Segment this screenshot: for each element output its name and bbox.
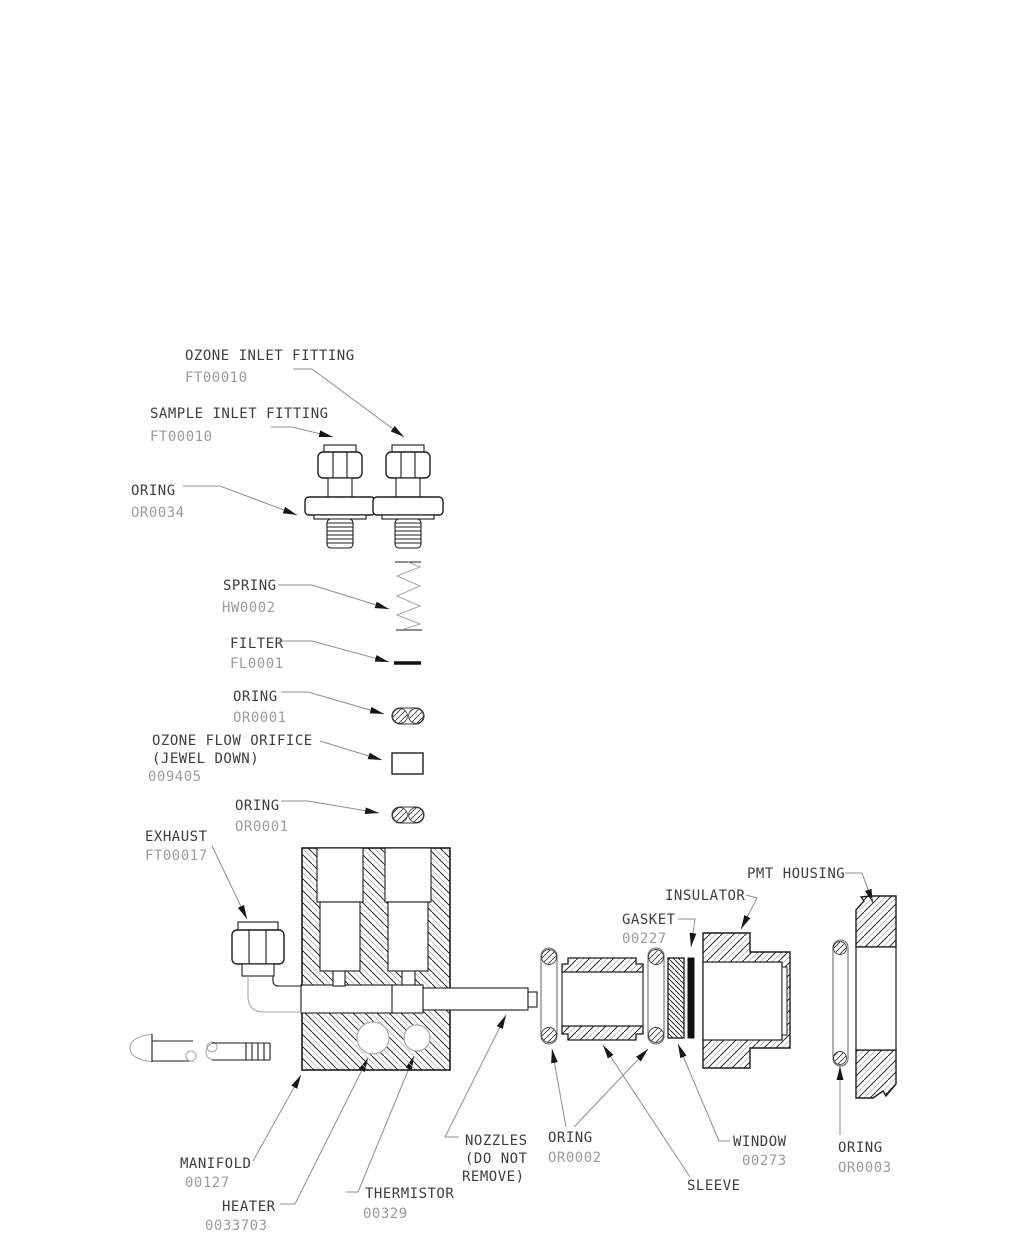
pmt-housing-drawing: [856, 896, 896, 1098]
leader-oring-or0034: [183, 486, 297, 515]
labels: OZONE INLET FITTING FT00010 SAMPLE INLET…: [131, 348, 892, 1234]
leader-manifold: [253, 1075, 301, 1161]
spring-drawing: [395, 562, 422, 630]
label-oring-or0002: ORING: [548, 1130, 593, 1146]
oring-or0001-lower-drawing: [392, 807, 424, 823]
label-window-pn: 00273: [742, 1153, 787, 1169]
label-exhaust-pn: FT00017: [145, 848, 208, 864]
leader-gasket: [678, 919, 695, 947]
leader-heater: [280, 1058, 368, 1204]
label-spring: SPRING: [223, 578, 277, 594]
leader-ozone-inlet-fitting: [293, 369, 404, 437]
oring-or0001-upper-drawing: [392, 708, 424, 724]
label-sample-inlet-fitting-pn: FT00010: [150, 429, 213, 445]
nozzles-drawing: [392, 985, 537, 1013]
exploded-parts-diagram: OZONE INLET FITTING FT00010 SAMPLE INLET…: [0, 0, 1031, 1246]
manifold-drawing: [301, 848, 450, 1070]
label-nozzles: NOZZLES: [465, 1133, 528, 1149]
window-drawing: [668, 958, 684, 1038]
leader-sample-inlet-fitting: [271, 427, 333, 437]
exhaust-fitting-drawing: [232, 922, 302, 1012]
label-heater-pn: 0033703: [205, 1218, 268, 1234]
sample-inlet-fitting-drawing: [305, 445, 375, 548]
leader-oring-or0001-lower: [281, 801, 379, 813]
label-thermistor: THERMISTOR: [365, 1186, 454, 1202]
label-oring-or0003-pn: OR0003: [838, 1160, 892, 1176]
leader-exhaust: [212, 846, 247, 919]
label-sleeve: SLEEVE: [687, 1178, 741, 1194]
sleeve-drawing: [562, 958, 643, 1040]
leader-oring-or0001-upper: [281, 692, 384, 714]
label-oring-or0002-pn: OR0002: [548, 1150, 602, 1166]
label-oring-or0001-lower-pn: OR0001: [235, 819, 289, 835]
label-ozone-flow-orifice-pn: 009405: [148, 769, 202, 785]
insulator-drawing: [703, 933, 790, 1068]
label-gasket-pn: 00227: [622, 931, 667, 947]
label-manifold-pn: 00127: [185, 1175, 230, 1191]
label-insulator: INSULATOR: [665, 888, 745, 904]
label-oring-or0001-lower: ORING: [235, 798, 280, 814]
gasket-drawing: [688, 958, 694, 1038]
label-heater: HEATER: [222, 1199, 276, 1215]
leader-ozone-flow-orifice: [320, 741, 382, 760]
label-pmt-housing: PMT HOUSING: [747, 866, 845, 882]
ozone-inlet-fitting-drawing: [373, 445, 443, 548]
heater-bore-circle: [357, 1022, 389, 1054]
leader-nozzles: [445, 1015, 506, 1137]
label-nozzles-note2: REMOVE): [462, 1169, 525, 1185]
leader-oring-or0002-right: [574, 1049, 648, 1127]
label-spring-pn: HW0002: [222, 600, 276, 616]
label-ozone-inlet-fitting-pn: FT00010: [185, 370, 248, 386]
leader-oring-or0002-left: [552, 1049, 566, 1127]
label-oring-or0001-upper-pn: OR0001: [233, 710, 287, 726]
label-ozone-flow-orifice: OZONE FLOW ORIFICE: [152, 733, 313, 749]
label-oring-or0034: ORING: [131, 483, 176, 499]
label-exhaust: EXHAUST: [145, 829, 208, 845]
leader-filter: [278, 641, 389, 662]
label-ozone-inlet-fitting: OZONE INLET FITTING: [185, 348, 355, 364]
oring-or0002-right-drawing: [648, 948, 664, 1044]
heater-cartridge-drawing: [130, 1034, 196, 1062]
label-sample-inlet-fitting: SAMPLE INLET FITTING: [150, 406, 329, 422]
ozone-flow-orifice-drawing: [392, 753, 423, 774]
manual-page: OZONE INLET FITTING FT00010 SAMPLE INLET…: [0, 0, 1031, 1246]
thermistor-bore-circle: [404, 1025, 430, 1051]
thermistor-probe-drawing: [206, 1042, 270, 1060]
oring-or0002-left-drawing: [541, 948, 557, 1044]
label-oring-or0034-pn: OR0034: [131, 505, 185, 521]
label-thermistor-pn: 00329: [363, 1206, 408, 1222]
label-filter-pn: FL0001: [230, 656, 284, 672]
leader-spring: [278, 585, 389, 609]
label-oring-or0001-upper: ORING: [233, 689, 278, 705]
label-window: WINDOW: [733, 1134, 787, 1150]
label-filter: FILTER: [230, 636, 284, 652]
label-oring-or0003: ORING: [838, 1140, 883, 1156]
label-manifold: MANIFOLD: [180, 1156, 251, 1172]
oring-or0003-drawing: [833, 940, 848, 1066]
label-gasket: GASKET: [622, 912, 676, 928]
leader-sleeve: [603, 1045, 690, 1177]
leader-thermistor: [346, 1056, 414, 1192]
leader-lines: [183, 369, 873, 1204]
label-nozzles-note1: (DO NOT: [465, 1151, 528, 1167]
label-ozone-flow-orifice-note: (JEWEL DOWN): [152, 751, 259, 767]
